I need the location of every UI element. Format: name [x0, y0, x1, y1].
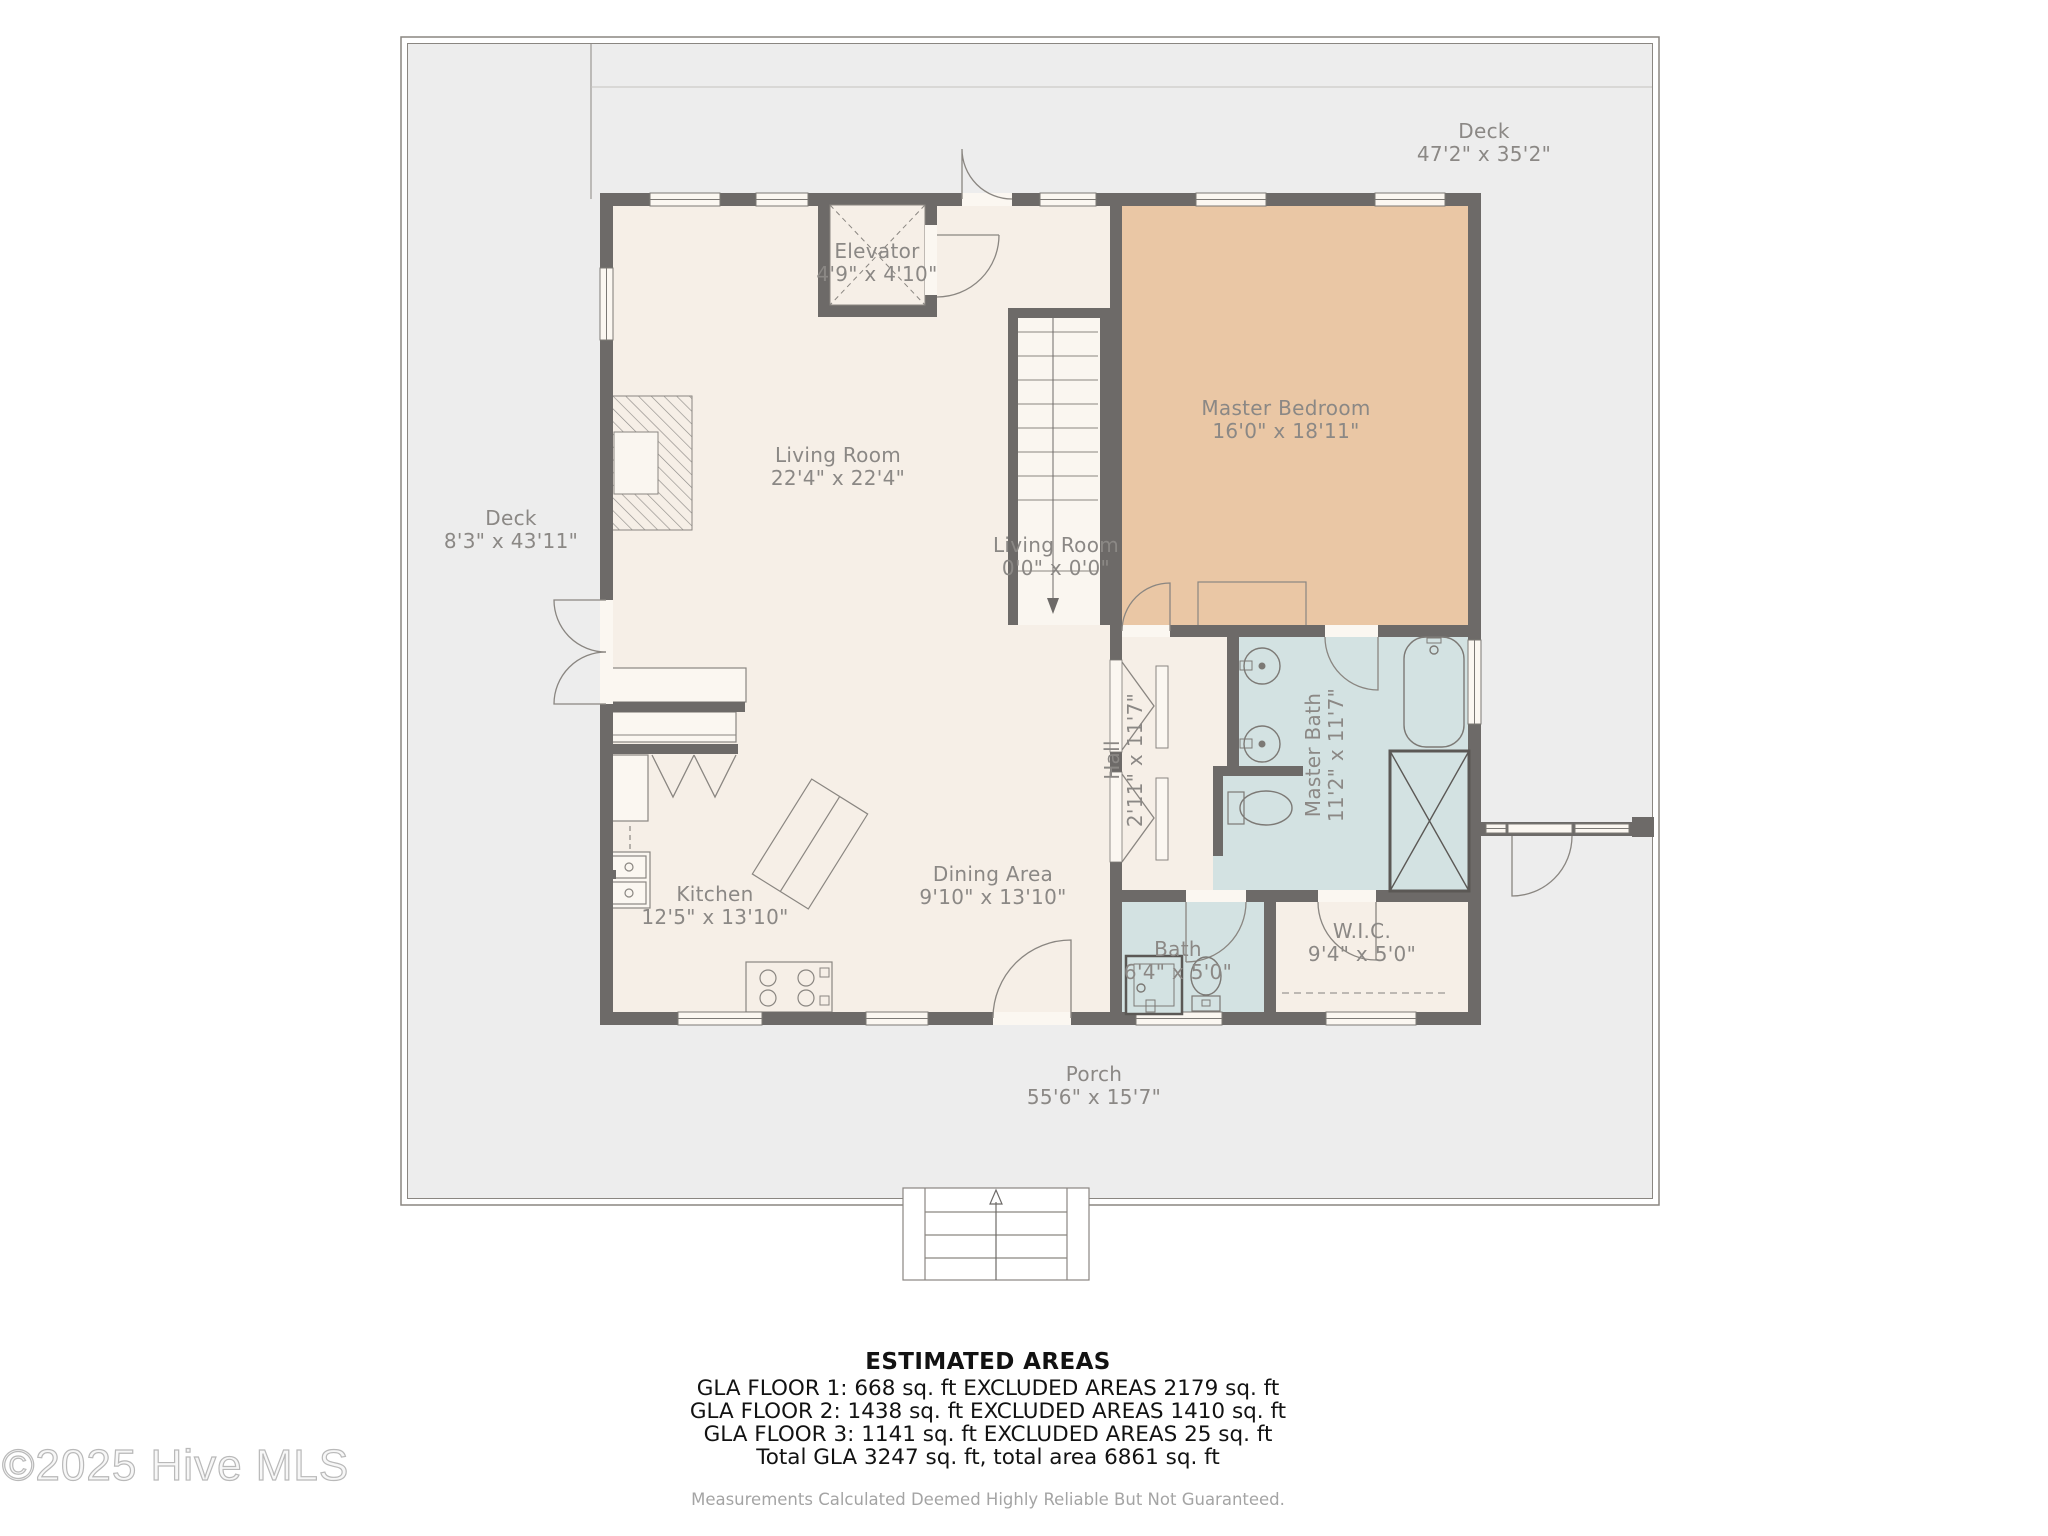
room-label-kitchen: Kitchen 12'5" x 13'10" — [641, 883, 788, 929]
gla-floor-3: GLA FLOOR 3: 1141 sq. ft EXCLUDED AREAS … — [538, 1423, 1438, 1446]
room-label-master-bedroom: Master Bedroom 16'0" x 18'11" — [1201, 397, 1370, 443]
room-label-hall: Hall 2'11" x 11'7" — [1101, 693, 1147, 827]
floor-plan-page: Deck 47'2" x 35'2" Deck 8'3" x 43'11" El… — [0, 0, 2048, 1536]
room-label-bath: Bath 6'4" x 5'0" — [1124, 938, 1232, 984]
room-label-elevator: Elevator 4'9" x 4'10" — [816, 240, 937, 286]
fireplace — [612, 396, 692, 530]
estimated-areas-block: ESTIMATED AREAS GLA FLOOR 1: 668 sq. ft … — [538, 1349, 1438, 1509]
gla-floor-2: GLA FLOOR 2: 1438 sq. ft EXCLUDED AREAS … — [538, 1400, 1438, 1423]
room-label-master-bath: Master Bath 11'2" x 11'7" — [1302, 688, 1348, 822]
shower — [1390, 751, 1469, 891]
room-label-dining-area: Dining Area 9'10" x 13'10" — [919, 863, 1066, 909]
disclaimer: Measurements Calculated Deemed Highly Re… — [538, 1490, 1438, 1509]
gla-total: Total GLA 3247 sq. ft, total area 6861 s… — [538, 1446, 1438, 1469]
mls-watermark: ©2025 Hive MLS — [2, 1441, 349, 1491]
exterior-stairs — [903, 1188, 1089, 1280]
floor-plan-drawing — [0, 0, 2048, 1536]
room-label-deck-top: Deck 47'2" x 35'2" — [1417, 120, 1551, 166]
gla-floor-1: GLA FLOOR 1: 668 sq. ft EXCLUDED AREAS 2… — [538, 1377, 1438, 1400]
room-label-living-room: Living Room 22'4" x 22'4" — [771, 444, 905, 490]
room-label-deck-left: Deck 8'3" x 43'11" — [444, 507, 578, 553]
room-label-porch: Porch 55'6" x 15'7" — [1027, 1063, 1161, 1109]
room-label-stairwell: Living Room 0'0" x 0'0" — [993, 534, 1119, 580]
room-label-wic: W.I.C. 9'4" x 5'0" — [1308, 920, 1416, 966]
estimated-areas-title: ESTIMATED AREAS — [538, 1349, 1438, 1375]
